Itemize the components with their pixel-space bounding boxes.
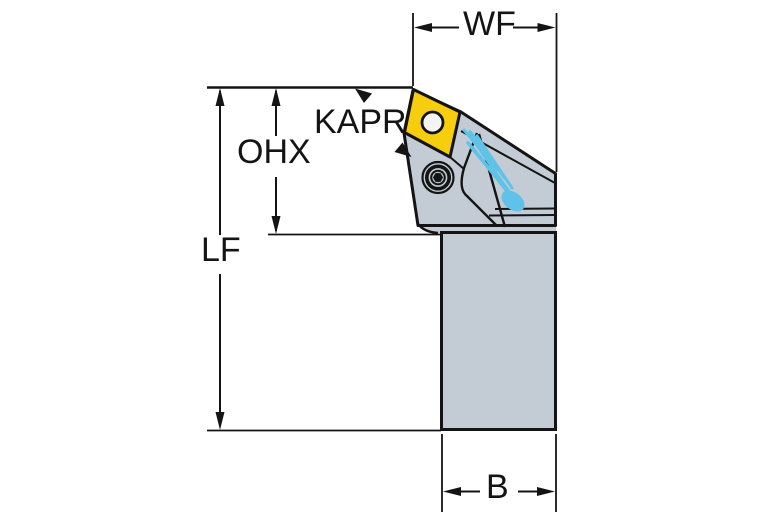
- b-arrow-right: [537, 487, 555, 496]
- dimension-label-b: B: [486, 470, 509, 504]
- dimension-label-lf: LF: [201, 233, 241, 267]
- dimension-label-ohx: OHX: [237, 135, 311, 169]
- tool-drawing: [0, 0, 767, 523]
- diagram-canvas: WF KAPR OHX LF B: [0, 0, 767, 523]
- tool-shank: [442, 233, 556, 430]
- wf-arrow-left: [414, 23, 432, 32]
- wf-arrow-right: [538, 23, 556, 32]
- clamp-screw: [423, 162, 454, 193]
- b-arrow-left: [443, 487, 461, 496]
- lf-arrow-down: [216, 412, 225, 430]
- lf-arrow-up: [216, 88, 225, 106]
- dimension-label-kapr: KAPR: [314, 105, 407, 139]
- ohx-arrow-up: [272, 88, 281, 106]
- dimension-label-wf: WF: [463, 7, 516, 41]
- kapr-arrow-to-line: [355, 89, 372, 104]
- insert-hole: [422, 112, 443, 133]
- tool-body: [404, 90, 556, 430]
- ohx-arrow-down: [272, 216, 281, 234]
